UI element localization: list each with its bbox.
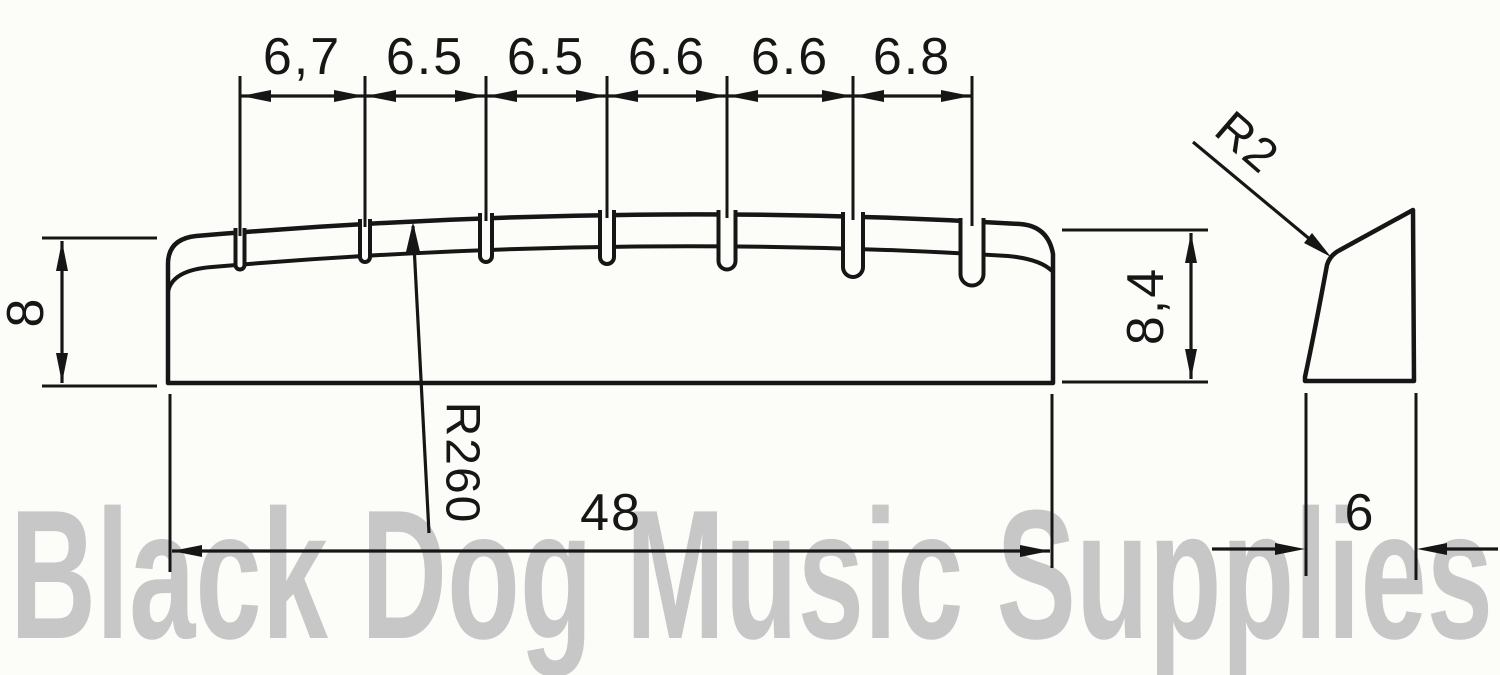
side-radius-callout: R2 [1193,102,1331,257]
right-height-label: 8,4 [1117,267,1175,345]
side-thickness-label: 6 [1345,484,1376,542]
side-view [1305,210,1414,381]
guitar-nut-dimension-drawing: Black Dog Music Supplies [0,0,1500,675]
front-view [168,207,1053,383]
left-height-dimension: 8 [0,238,157,386]
crown-radius-label: R260 [436,402,489,525]
side-profile-outline [1305,210,1414,381]
side-radius-label: R2 [1205,102,1289,185]
watermark-text: Black Dog Music Supplies [10,471,1493,675]
spacing-label-6: 6.8 [873,28,951,86]
spacing-label-4: 6.6 [628,28,706,86]
string-spacing-dimension: 6,7 6.5 6.5 6.6 6.6 6.8 [240,28,972,236]
spacing-label-2: 6.5 [386,28,464,86]
right-height-dimension: 8,4 [1062,230,1208,382]
spacing-label-5: 6.6 [751,28,829,86]
technical-drawing-page: Black Dog Music Supplies [0,0,1500,675]
spacing-label-1: 6,7 [263,28,341,86]
overall-width-label: 48 [580,484,642,542]
left-height-label: 8 [0,297,55,328]
spacing-label-3: 6.5 [507,28,585,86]
